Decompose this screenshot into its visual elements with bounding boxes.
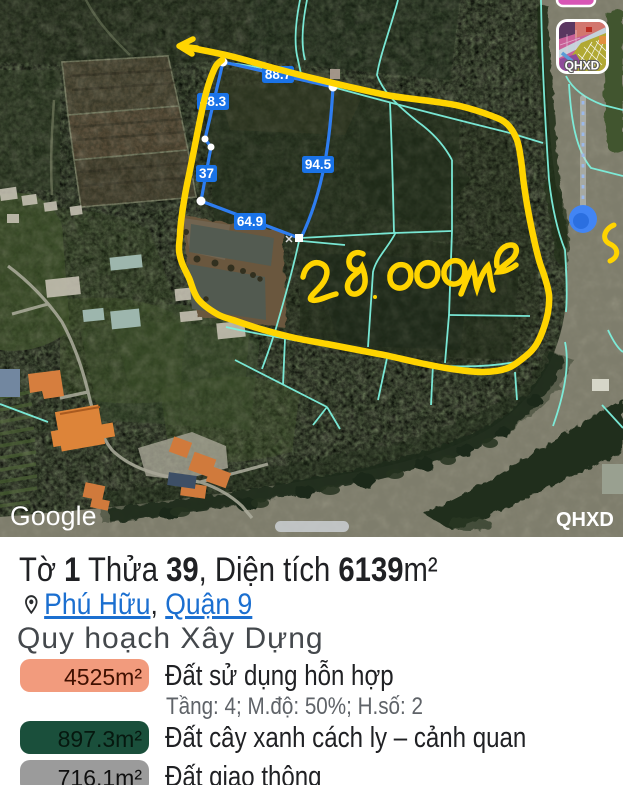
svg-text:64.9: 64.9 [237,214,263,229]
svg-text:QHXD: QHXD [565,59,600,73]
svg-text:QHXD: QHXD [556,509,614,531]
svg-text:37: 37 [199,166,214,181]
svg-text:Google: Google [10,501,97,531]
svg-text:94.5: 94.5 [305,157,332,172]
